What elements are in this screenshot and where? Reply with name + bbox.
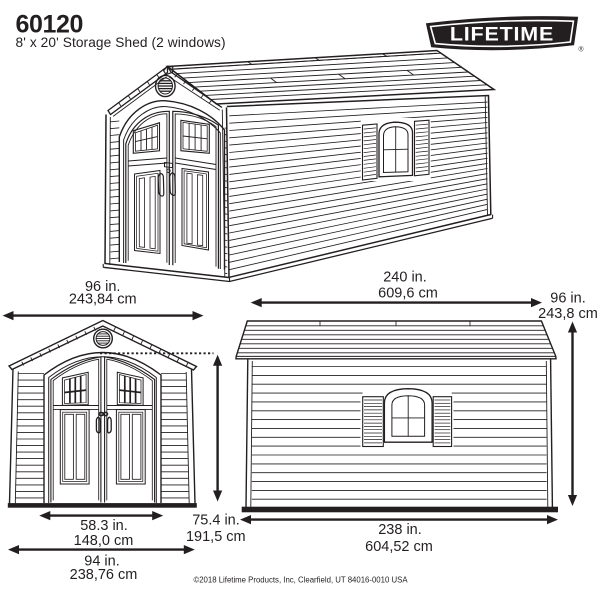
svg-text:148,0 cm: 148,0 cm (74, 533, 134, 549)
svg-text:238,76 cm: 238,76 cm (70, 567, 138, 583)
svg-text:238 in.: 238 in. (378, 522, 422, 538)
svg-text:LIFETIME: LIFETIME (450, 23, 554, 45)
svg-text:60120: 60120 (16, 10, 84, 38)
svg-text:243,8 cm: 243,8 cm (538, 306, 598, 322)
svg-text:58.3 in.: 58.3 in. (80, 518, 128, 534)
svg-text:®: ® (578, 46, 584, 54)
svg-text:243,84 cm: 243,84 cm (69, 291, 137, 307)
svg-text:75.4 in.: 75.4 in. (192, 513, 240, 529)
svg-text:©2018 Lifetime Products, Inc,: ©2018 Lifetime Products, Inc, Clearfield… (193, 576, 408, 585)
svg-text:609,6 cm: 609,6 cm (378, 285, 438, 301)
svg-text:240 in.: 240 in. (383, 270, 427, 286)
svg-text:191,5 cm: 191,5 cm (186, 529, 246, 545)
svg-text:604,52 cm: 604,52 cm (365, 539, 433, 555)
svg-text:8' x 20' Storage Shed (2 windo: 8' x 20' Storage Shed (2 windows) (16, 35, 226, 50)
svg-text:96 in.: 96 in. (550, 291, 585, 307)
